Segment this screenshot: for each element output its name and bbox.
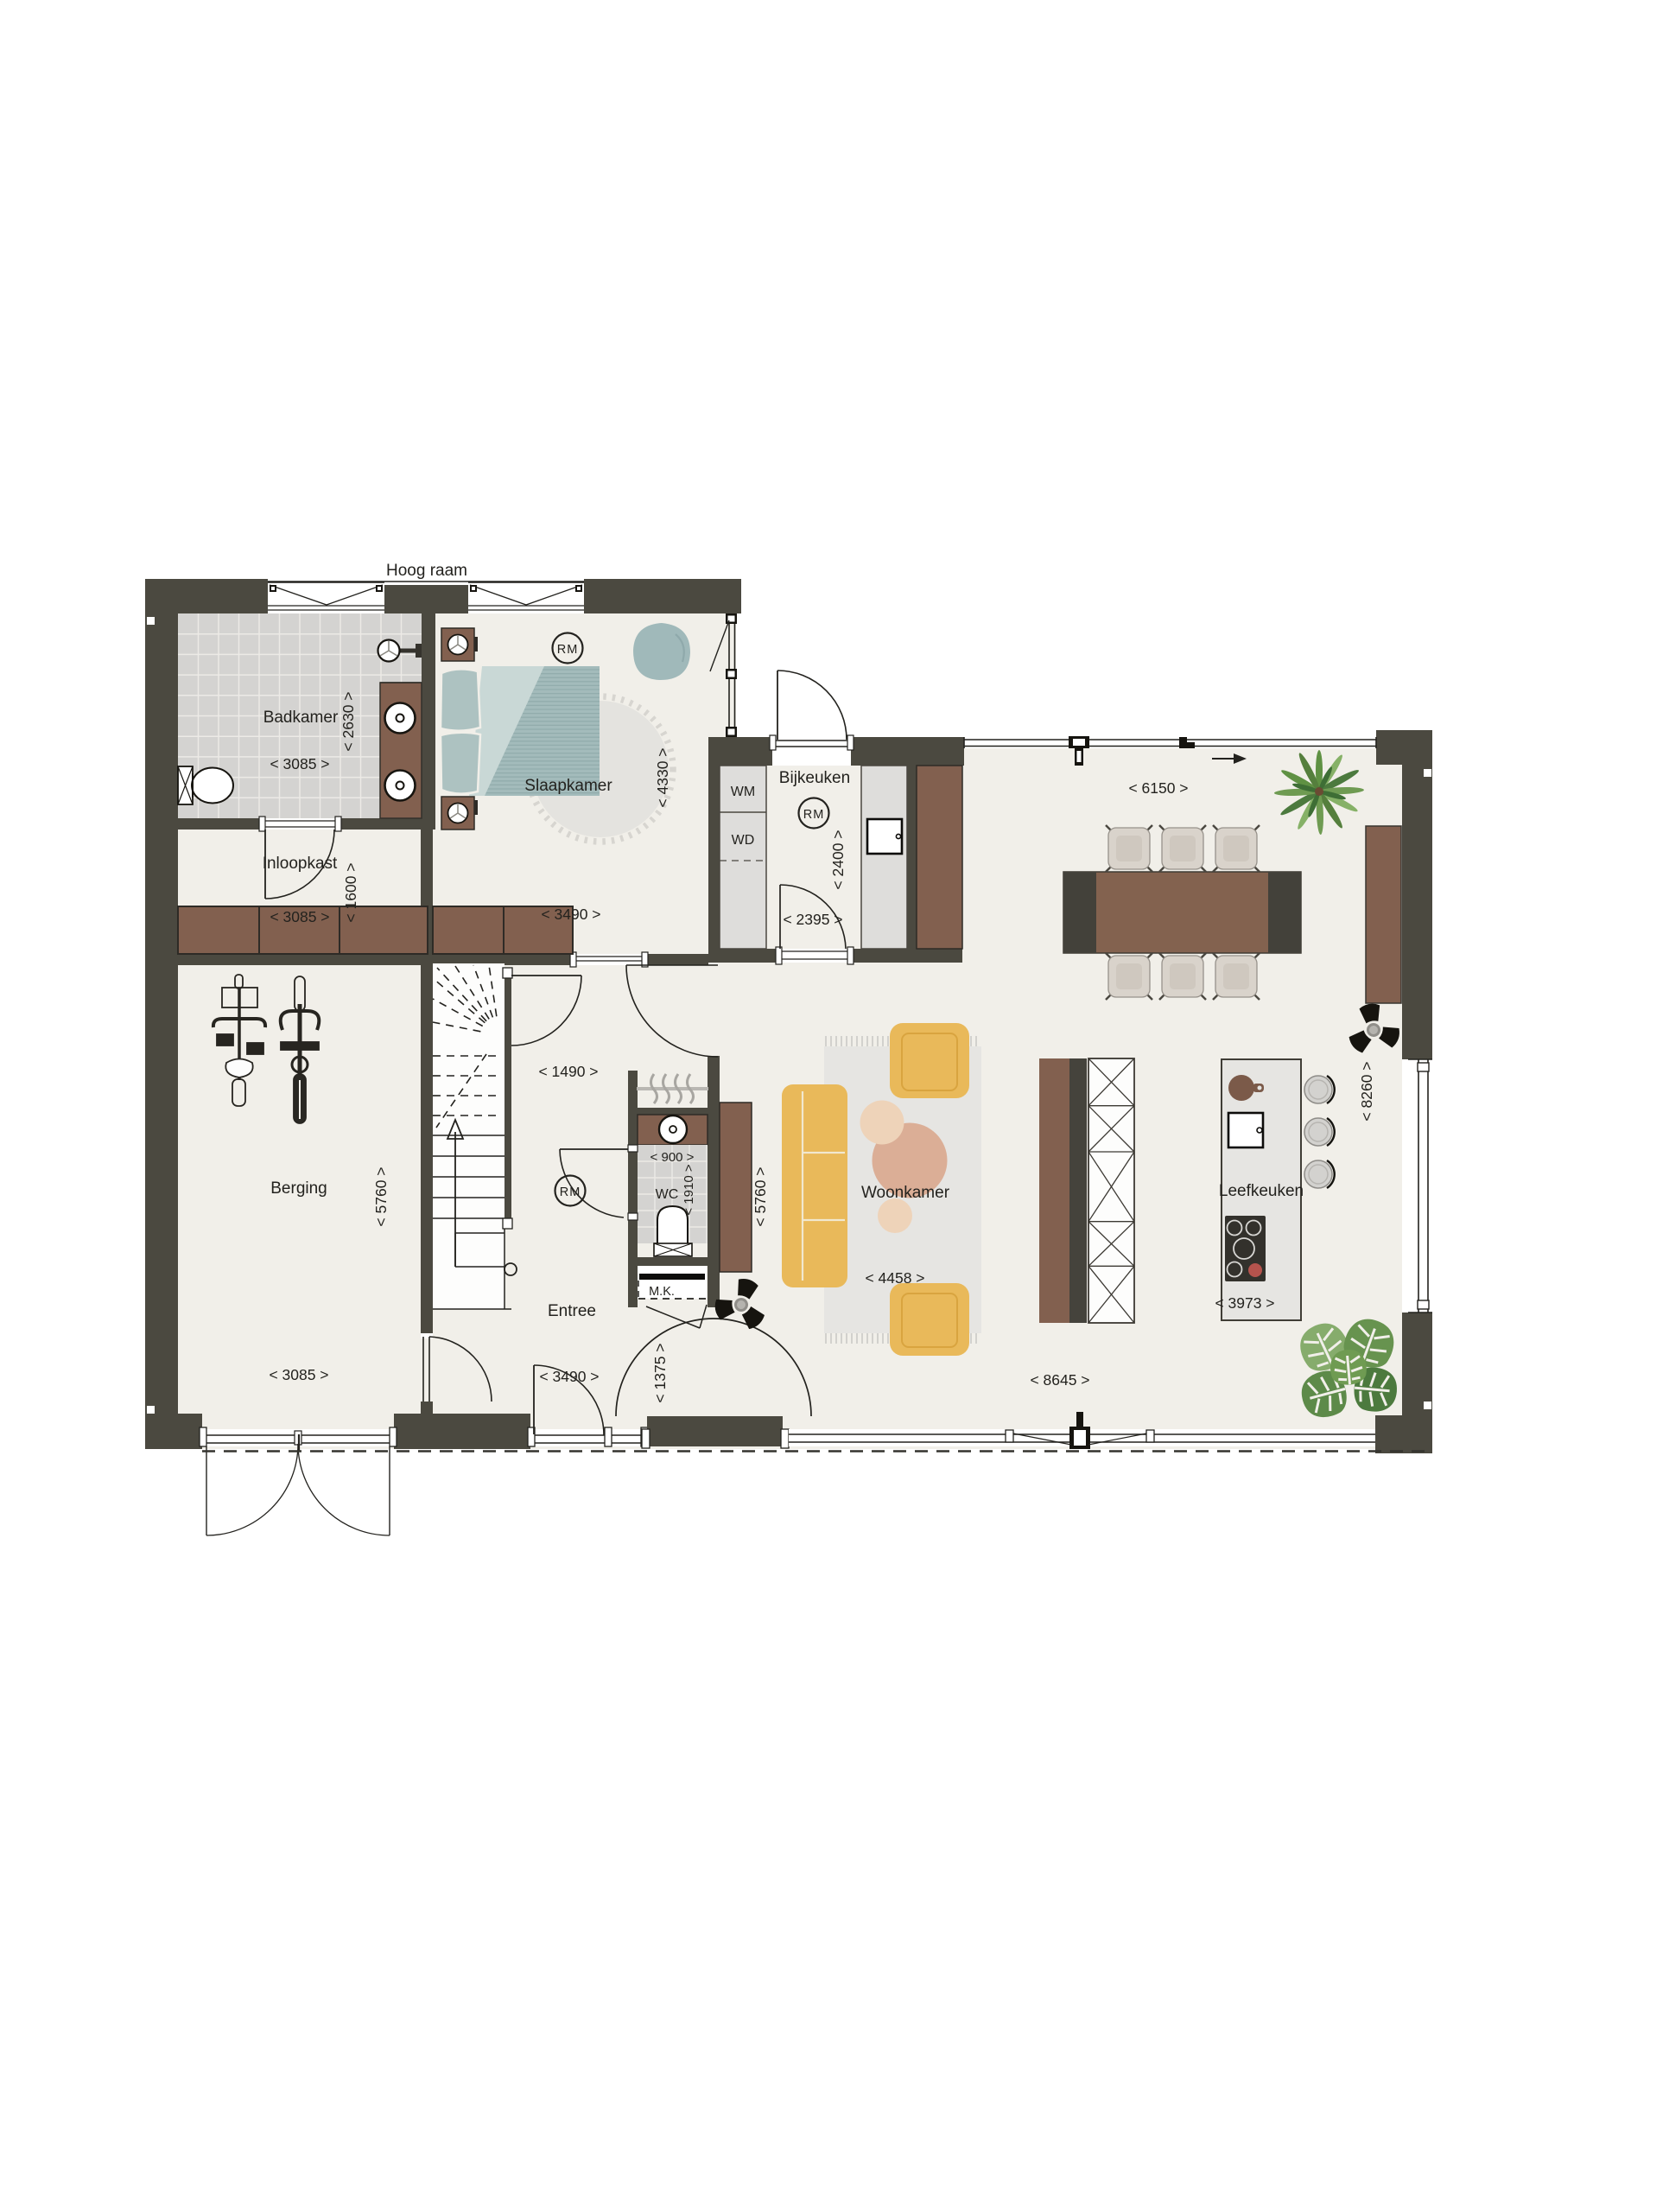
svg-text:< 8260 >: < 8260 > [1358,1061,1375,1121]
svg-text:< 8645 >: < 8645 > [1030,1371,1089,1389]
svg-text:Badkamer: Badkamer [263,709,339,727]
svg-text:< 1375 >: < 1375 > [651,1343,669,1402]
svg-text:Woonkamer: Woonkamer [861,1184,950,1202]
svg-text:< 5760 >: < 5760 > [372,1166,390,1226]
svg-text:< 2395 >: < 2395 > [783,911,842,928]
svg-text:< 4458 >: < 4458 > [865,1269,924,1287]
svg-text:Leefkeuken: Leefkeuken [1219,1182,1304,1200]
svg-text:< 1490 >: < 1490 > [538,1063,598,1080]
svg-text:WC: WC [656,1187,679,1202]
svg-text:< 3973 >: < 3973 > [1215,1294,1274,1312]
svg-text:< 3490 >: < 3490 > [539,1368,599,1385]
svg-text:Hoog raam: Hoog raam [386,562,467,580]
svg-text:Slaapkamer: Slaapkamer [524,777,612,795]
svg-text:WD: WD [732,833,755,848]
svg-text:< 5760 >: < 5760 > [752,1166,769,1226]
svg-text:< 3490 >: < 3490 > [541,906,600,923]
svg-text:< 6150 >: < 6150 > [1128,779,1188,797]
svg-text:< 3085 >: < 3085 > [269,1366,328,1383]
svg-text:< 1910 >: < 1910 > [682,1164,696,1215]
svg-text:< 900 >: < 900 > [650,1150,695,1165]
svg-text:< 2400 >: < 2400 > [829,829,847,889]
svg-text:RM: RM [803,808,825,822]
svg-text:Berging: Berging [270,1179,327,1198]
svg-text:< 3085 >: < 3085 > [270,755,329,772]
svg-text:RM: RM [560,1185,581,1199]
svg-text:Inloopkast: Inloopkast [263,855,338,873]
svg-text:M.K.: M.K. [649,1285,675,1299]
svg-text:< 1600 >: < 1600 > [342,862,359,922]
svg-text:Entree: Entree [548,1302,596,1320]
svg-text:WM: WM [731,785,755,799]
svg-text:Bijkeuken: Bijkeuken [779,769,850,787]
svg-text:< 4330 >: < 4330 > [654,747,671,807]
svg-text:< 3085 >: < 3085 > [270,908,329,925]
svg-text:RM: RM [557,643,579,657]
svg-text:< 2630 >: < 2630 > [340,691,357,751]
